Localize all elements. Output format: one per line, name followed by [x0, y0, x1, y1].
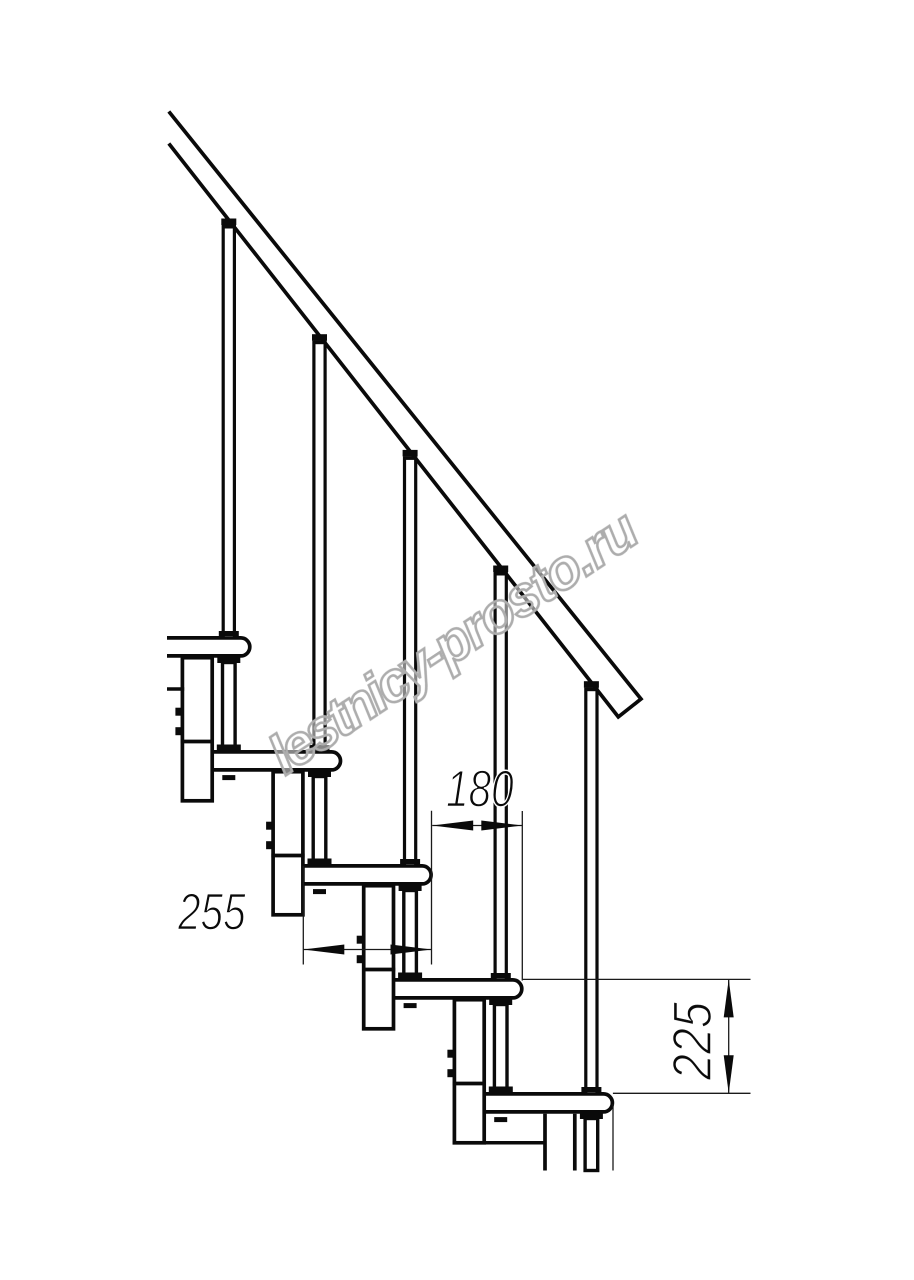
- svg-text:180: 180: [446, 760, 514, 818]
- svg-text:255: 255: [177, 883, 246, 941]
- svg-text:225: 225: [661, 1001, 722, 1080]
